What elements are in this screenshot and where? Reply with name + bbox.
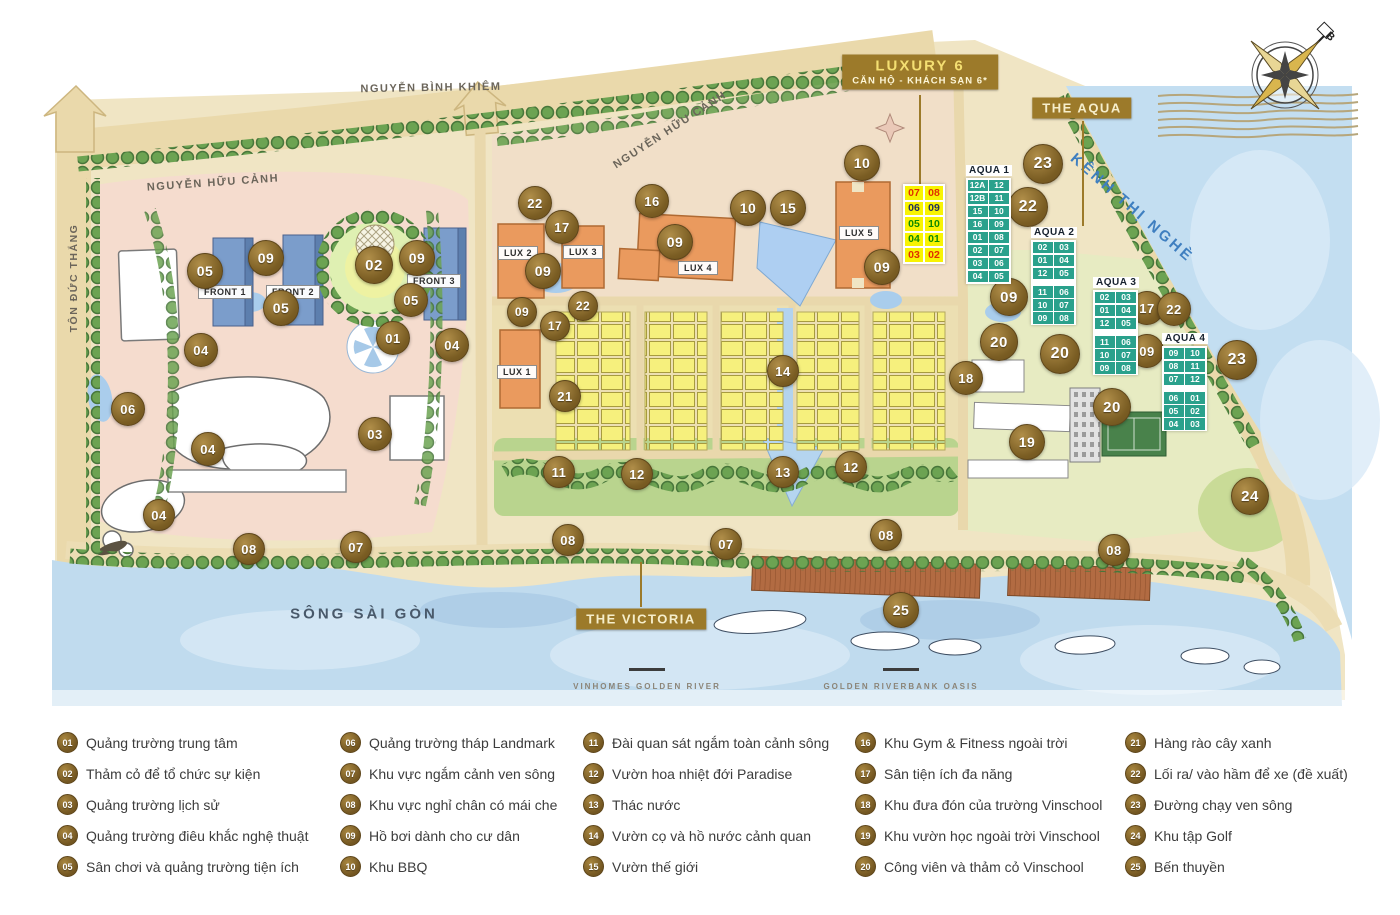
legend-item-label: Đài quan sát ngắm toàn cảnh sông xyxy=(612,735,829,751)
map-marker-07: 07 xyxy=(340,531,372,563)
legend-item-10: 10Khu BBQ xyxy=(340,851,557,882)
map-marker-09: 09 xyxy=(399,240,435,276)
badge-leader-line xyxy=(1082,121,1084,226)
legend-item-label: Quảng trường trung tâm xyxy=(86,735,238,751)
legend-column-3: 11Đài quan sát ngắm toàn cảnh sông12Vườn… xyxy=(583,727,829,882)
lux-unit-cell: 10 xyxy=(925,217,943,231)
aqua-unit-cell: 05 xyxy=(989,271,1009,283)
map-marker-21: 21 xyxy=(549,380,581,412)
legend-item-08: 08Khu vực nghỉ chân có mái che xyxy=(340,789,557,820)
legend-item-label: Vườn cọ và hồ nước cảnh quan xyxy=(612,828,811,844)
map-marker-20: 20 xyxy=(1093,388,1131,426)
aqua-unit-cell: 12 xyxy=(1095,318,1115,330)
map-caption: VINHOMES GOLDEN RIVER xyxy=(573,682,721,691)
legend-item-label: Lối ra/ vào hầm để xe (đề xuất) xyxy=(1154,766,1348,782)
legend-item-number: 17 xyxy=(855,763,876,784)
legend-item-03: 03Quảng trường lịch sử xyxy=(57,789,308,820)
legend-item-06: 06Quảng trường tháp Landmark xyxy=(340,727,557,758)
legend-item-number: 11 xyxy=(583,732,604,753)
aqua-table-gap xyxy=(1095,331,1137,335)
map-marker-09: 09 xyxy=(507,297,537,327)
aqua-unit-cell: 10 xyxy=(989,206,1009,218)
legend-item-number: 12 xyxy=(583,763,604,784)
legend-item-label: Khu vườn học ngoài trời Vinschool xyxy=(884,828,1100,844)
lux-unit-cell: 07 xyxy=(905,186,923,200)
aqua-unit-cell: 07 xyxy=(1116,349,1136,361)
map-marker-08: 08 xyxy=(870,519,902,551)
aqua-unit-cell: 01 xyxy=(1185,392,1205,404)
map-marker-24: 24 xyxy=(1231,477,1269,515)
aqua-unit-cell: 01 xyxy=(1033,255,1053,267)
map-marker-10: 10 xyxy=(844,145,880,181)
legend-item-19: 19Khu vườn học ngoài trời Vinschool xyxy=(855,820,1102,851)
map-marker-20: 20 xyxy=(980,323,1018,361)
aqua-unit-cell: 04 xyxy=(1054,255,1074,267)
legend-item-09: 09Hồ bơi dành cho cư dân xyxy=(340,820,557,851)
aqua-table-aqua-4: AQUA 4091008110712060105020403 xyxy=(1162,328,1208,431)
aqua-table-aqua-3: AQUA 3020301041205110610070908 xyxy=(1093,272,1139,375)
aqua-table-title: AQUA 4 xyxy=(1162,333,1208,344)
street-label-ton-duc-thang: TÔN ĐỨC THẮNG xyxy=(68,224,80,333)
legend-item-11: 11Đài quan sát ngắm toàn cảnh sông xyxy=(583,727,829,758)
legend-item-number: 07 xyxy=(340,763,361,784)
aqua-unit-cell: 02 xyxy=(968,245,988,257)
legend-item-number: 02 xyxy=(57,763,78,784)
aqua-table-aqua-1: AQUA 112A1212B11151016090108020703060405 xyxy=(966,160,1012,284)
legend-item-number: 14 xyxy=(583,825,604,846)
the-aqua-badge-line-0: THE AQUA xyxy=(1042,101,1121,116)
legend-item-label: Khu đưa đón của trường Vinschool xyxy=(884,797,1102,813)
aqua-unit-cell: 03 xyxy=(1116,292,1136,304)
luxury-6-badge-line-0: LUXURY 6 xyxy=(852,58,988,75)
map-marker-09: 09 xyxy=(248,240,284,276)
aqua-table-grid: 020301041205110610070908 xyxy=(1031,240,1076,325)
aqua-unit-cell: 05 xyxy=(1116,318,1136,330)
aqua-table-grid: 020301041205110610070908 xyxy=(1093,290,1138,375)
map-marker-05: 05 xyxy=(187,253,223,289)
legend-item-04: 04Quảng trường điêu khắc nghệ thuật xyxy=(57,820,308,851)
legend-item-label: Hàng rào cây xanh xyxy=(1154,735,1272,751)
master-plan-poster: B NGUYỄN BÌNH KHIÊMNGUYỄN HỮU CẢNHNGUYỄN… xyxy=(0,0,1400,915)
lux-unit-cell: 09 xyxy=(925,202,943,216)
legend-column-5: 21Hàng rào cây xanh22Lối ra/ vào hầm để … xyxy=(1125,727,1348,882)
legend-item-14: 14Vườn cọ và hồ nước cảnh quan xyxy=(583,820,829,851)
legend-item-label: Hồ bơi dành cho cư dân xyxy=(369,828,520,844)
aqua-unit-cell: 01 xyxy=(1095,305,1115,317)
aqua-unit-cell: 06 xyxy=(1054,286,1074,298)
map-marker-05: 05 xyxy=(394,283,428,317)
aqua-unit-cell: 09 xyxy=(1033,312,1053,324)
legend-item-label: Khu Gym & Fitness ngoài trời xyxy=(884,735,1067,751)
legend-column-2: 06Quảng trường tháp Landmark07Khu vực ng… xyxy=(340,727,557,882)
lux-unit-cell: 06 xyxy=(905,202,923,216)
street-label-song-sai-gon: SÔNG SÀI GÒN xyxy=(290,606,438,623)
map-marker-23: 23 xyxy=(1023,144,1063,184)
legend-item-label: Quảng trường lịch sử xyxy=(86,797,220,813)
aqua-unit-cell: 10 xyxy=(1033,299,1053,311)
legend-item-number: 21 xyxy=(1125,732,1146,753)
aqua-unit-cell: 01 xyxy=(968,232,988,244)
aqua-unit-cell: 15 xyxy=(968,206,988,218)
legend-item-label: Khu vực nghỉ chân có mái che xyxy=(369,797,557,813)
lux-unit-table: 07080609051004010302 xyxy=(903,184,945,264)
aqua-unit-cell: 03 xyxy=(1185,418,1205,430)
legend-item-number: 10 xyxy=(340,856,361,877)
map-marker-04: 04 xyxy=(191,432,225,466)
compass-rose: B xyxy=(1158,22,1358,137)
lux-unit-cell: 04 xyxy=(905,233,923,247)
map-marker-15: 15 xyxy=(770,190,806,226)
legend-item-number: 24 xyxy=(1125,825,1146,846)
lux-unit-cell: 01 xyxy=(925,233,943,247)
aqua-unit-cell: 08 xyxy=(989,232,1009,244)
legend-item-16: 16Khu Gym & Fitness ngoài trời xyxy=(855,727,1102,758)
aqua-unit-cell: 10 xyxy=(1185,348,1205,360)
aqua-unit-cell: 10 xyxy=(1095,349,1115,361)
aqua-unit-cell: 12 xyxy=(1033,268,1053,280)
legend-item-02: 02Thảm cỏ để tổ chức sự kiện xyxy=(57,758,308,789)
caption-dash xyxy=(883,668,919,671)
legend-item-number: 20 xyxy=(855,856,876,877)
legend-item-01: 01Quảng trường trung tâm xyxy=(57,727,308,758)
legend-item-13: 13Thác nước xyxy=(583,789,829,820)
legend-item-label: Bến thuyền xyxy=(1154,859,1225,875)
map-marker-09: 09 xyxy=(657,224,693,260)
legend-item-number: 25 xyxy=(1125,856,1146,877)
map-marker-08: 08 xyxy=(233,533,265,565)
aqua-unit-cell: 06 xyxy=(1164,392,1184,404)
badge-leader-line xyxy=(640,562,642,607)
aqua-unit-cell: 08 xyxy=(1116,362,1136,374)
aqua-table-title: AQUA 3 xyxy=(1093,277,1139,288)
building-label-lux-4: LUX 4 xyxy=(678,261,718,275)
aqua-unit-cell: 05 xyxy=(1164,405,1184,417)
map-marker-04: 04 xyxy=(143,499,175,531)
aqua-table-gap xyxy=(1164,387,1206,391)
map-marker-20: 20 xyxy=(1040,334,1080,374)
aqua-unit-cell: 12B xyxy=(968,193,988,205)
aqua-unit-cell: 02 xyxy=(1095,292,1115,304)
aqua-table-gap xyxy=(1033,281,1075,285)
map-marker-17: 17 xyxy=(540,311,570,341)
aqua-unit-cell: 04 xyxy=(1164,418,1184,430)
map-marker-01: 01 xyxy=(376,321,410,355)
aqua-unit-cell: 07 xyxy=(1054,299,1074,311)
aqua-unit-cell: 08 xyxy=(1164,361,1184,373)
legend-item-label: Sân tiện ích đa năng xyxy=(884,766,1012,782)
legend-item-12: 12Vườn hoa nhiệt đới Paradise xyxy=(583,758,829,789)
townhouse-clusters xyxy=(556,312,945,450)
legend-item-label: Thác nước xyxy=(612,797,680,813)
legend-item-label: Công viên và thảm cỏ Vinschool xyxy=(884,859,1084,875)
map-marker-04: 04 xyxy=(184,333,218,367)
aqua-table-aqua-2: AQUA 2020301041205110610070908 xyxy=(1031,222,1077,325)
map-marker-09: 09 xyxy=(990,278,1028,316)
legend-item-15: 15Vườn thế giới xyxy=(583,851,829,882)
map-marker-05: 05 xyxy=(263,290,299,326)
legend-item-number: 13 xyxy=(583,794,604,815)
map-marker-03: 03 xyxy=(358,417,392,451)
legend-item-label: Thảm cỏ để tổ chức sự kiện xyxy=(86,766,260,782)
luxury-6-badge: LUXURY 6CĂN HỘ - KHÁCH SẠN 6* xyxy=(842,55,998,90)
map-marker-09: 09 xyxy=(525,253,561,289)
lux-unit-cell: 02 xyxy=(925,248,943,262)
map-marker-08: 08 xyxy=(1098,534,1130,566)
building-label-lux-3: LUX 3 xyxy=(563,245,603,259)
legend-item-number: 03 xyxy=(57,794,78,815)
aqua-unit-cell: 12A xyxy=(968,180,988,192)
legend-item-label: Đường chạy ven sông xyxy=(1154,797,1292,813)
aqua-unit-cell: 03 xyxy=(968,258,988,270)
map-marker-12: 12 xyxy=(835,451,867,483)
legend-item-22: 22Lối ra/ vào hầm để xe (đề xuất) xyxy=(1125,758,1348,789)
map-marker-09: 09 xyxy=(864,249,900,285)
map-marker-22: 22 xyxy=(1157,292,1191,326)
aqua-unit-cell: 11 xyxy=(989,193,1009,205)
the-victoria-badge: THE VICTORIA xyxy=(576,609,706,630)
legend-item-number: 15 xyxy=(583,856,604,877)
aqua-unit-cell: 03 xyxy=(1054,242,1074,254)
legend-item-07: 07Khu vực ngắm cảnh ven sông xyxy=(340,758,557,789)
map-marker-06: 06 xyxy=(111,392,145,426)
legend-item-number: 04 xyxy=(57,825,78,846)
map-marker-17: 17 xyxy=(545,210,579,244)
aqua-unit-cell: 09 xyxy=(1164,348,1184,360)
aqua-table-grid: 12A1212B11151016090108020703060405 xyxy=(966,178,1011,284)
map-marker-25: 25 xyxy=(883,592,919,628)
aqua-unit-cell: 06 xyxy=(1116,336,1136,348)
legend-item-20: 20Công viên và thảm cỏ Vinschool xyxy=(855,851,1102,882)
map-marker-16: 16 xyxy=(635,184,669,218)
building-label-lux-5: LUX 5 xyxy=(839,226,879,240)
legend-item-label: Khu BBQ xyxy=(369,859,427,875)
legend-item-18: 18Khu đưa đón của trường Vinschool xyxy=(855,789,1102,820)
aqua-unit-cell: 11 xyxy=(1185,361,1205,373)
map-marker-04: 04 xyxy=(435,328,469,362)
lux-unit-cell: 03 xyxy=(905,248,923,262)
building-label-lux-1: LUX 1 xyxy=(497,365,537,379)
legend-item-number: 05 xyxy=(57,856,78,877)
legend-item-label: Quảng trường tháp Landmark xyxy=(369,735,555,751)
map-marker-22: 22 xyxy=(518,186,552,220)
legend-item-23: 23Đường chạy ven sông xyxy=(1125,789,1348,820)
legend-item-21: 21Hàng rào cây xanh xyxy=(1125,727,1348,758)
legend-item-label: Vườn hoa nhiệt đới Paradise xyxy=(612,766,792,782)
map-marker-22: 22 xyxy=(1008,187,1048,227)
aqua-table-grid: 091008110712060105020403 xyxy=(1162,346,1207,431)
map-marker-13: 13 xyxy=(767,456,799,488)
map-marker-12: 12 xyxy=(621,458,653,490)
map-marker-02: 02 xyxy=(355,246,393,284)
aqua-unit-cell: 06 xyxy=(989,258,1009,270)
map-marker-18: 18 xyxy=(949,361,983,395)
legend-item-label: Sân chơi và quảng trường tiện ích xyxy=(86,859,299,875)
legend-item-label: Khu vực ngắm cảnh ven sông xyxy=(369,766,555,782)
map-marker-08: 08 xyxy=(552,524,584,556)
map-caption: GOLDEN RIVERBANK OASIS xyxy=(823,682,978,691)
aqua-table-title: AQUA 2 xyxy=(1031,227,1077,238)
legend-item-17: 17Sân tiện ích đa năng xyxy=(855,758,1102,789)
aqua-unit-cell: 12 xyxy=(1185,374,1205,386)
aqua-unit-cell: 04 xyxy=(968,271,988,283)
aqua-unit-cell: 16 xyxy=(968,219,988,231)
legend-item-label: Vườn thế giới xyxy=(612,859,698,875)
aqua-unit-cell: 11 xyxy=(1095,336,1115,348)
legend-item-number: 22 xyxy=(1125,763,1146,784)
legend-column-4: 16Khu Gym & Fitness ngoài trời17Sân tiện… xyxy=(855,727,1102,882)
legend-item-25: 25Bến thuyền xyxy=(1125,851,1348,882)
aqua-unit-cell: 08 xyxy=(1054,312,1074,324)
map-marker-10: 10 xyxy=(730,190,766,226)
legend-item-number: 23 xyxy=(1125,794,1146,815)
legend-item-number: 19 xyxy=(855,825,876,846)
aqua-unit-cell: 05 xyxy=(1054,268,1074,280)
caption-dash xyxy=(629,668,665,671)
aqua-unit-cell: 11 xyxy=(1033,286,1053,298)
legend-item-number: 18 xyxy=(855,794,876,815)
legend-item-24: 24Khu tập Golf xyxy=(1125,820,1348,851)
aqua-unit-cell: 09 xyxy=(1095,362,1115,374)
aqua-unit-cell: 12 xyxy=(989,180,1009,192)
aqua-unit-cell: 07 xyxy=(1164,374,1184,386)
aqua-unit-cell: 02 xyxy=(1033,242,1053,254)
the-aqua-badge: THE AQUA xyxy=(1032,98,1131,119)
legend-item-number: 08 xyxy=(340,794,361,815)
legend-item-05: 05Sân chơi và quảng trường tiện ích xyxy=(57,851,308,882)
aqua-unit-cell: 09 xyxy=(989,219,1009,231)
map-marker-23: 23 xyxy=(1217,340,1257,380)
legend-item-number: 01 xyxy=(57,732,78,753)
aqua-unit-cell: 04 xyxy=(1116,305,1136,317)
aqua-unit-cell: 02 xyxy=(1185,405,1205,417)
street-label-nguyen-binh-khiem: NGUYỄN BÌNH KHIÊM xyxy=(360,81,501,95)
lux-unit-cell: 05 xyxy=(905,217,923,231)
the-victoria-badge-line-0: THE VICTORIA xyxy=(586,612,696,627)
legend-item-label: Khu tập Golf xyxy=(1154,828,1232,844)
map-marker-19: 19 xyxy=(1009,424,1045,460)
map-marker-22: 22 xyxy=(568,291,598,321)
lux-unit-cell: 08 xyxy=(925,186,943,200)
legend-item-number: 06 xyxy=(340,732,361,753)
map-marker-07: 07 xyxy=(710,528,742,560)
map-marker-14: 14 xyxy=(767,355,799,387)
legend-item-label: Quảng trường điêu khắc nghệ thuật xyxy=(86,828,308,844)
legend-item-number: 16 xyxy=(855,732,876,753)
badge-leader-line xyxy=(919,95,921,186)
map-marker-11: 11 xyxy=(543,456,575,488)
legend-column-1: 01Quảng trường trung tâm02Thảm cỏ để tổ … xyxy=(57,727,308,882)
aqua-table-title: AQUA 1 xyxy=(966,165,1012,176)
aqua-unit-cell: 07 xyxy=(989,245,1009,257)
legend-item-number: 09 xyxy=(340,825,361,846)
luxury-6-badge-line-1: CĂN HỘ - KHÁCH SẠN 6* xyxy=(852,76,988,87)
